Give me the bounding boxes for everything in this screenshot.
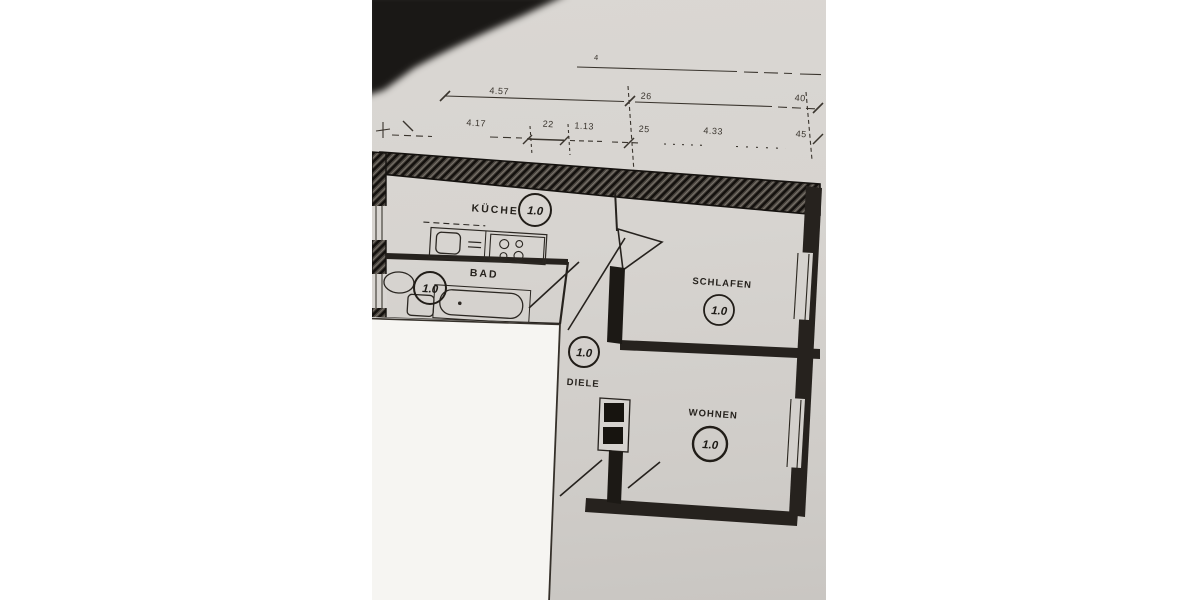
room-bad: BAD 1.0 [414,267,499,304]
dimension-label: 25 [638,124,650,135]
wall-wohnen-left [607,450,623,504]
dimension-labels: 4 4.57 26 40 4.17 22 1.13 25 4.33 45 [466,53,807,140]
page: 4 4.57 26 40 4.17 22 1.13 25 4.33 45 [0,0,1200,600]
wall-diele-schlafen [607,266,625,344]
dimension-label: 45 [795,129,807,140]
room-wohnen: WOHNEN 1.0 [688,407,738,461]
room-label: WOHNEN [688,407,738,421]
floorplan-drawing: 4 4.57 26 40 4.17 22 1.13 25 4.33 45 [372,0,826,600]
wall-bad-right [560,262,568,324]
room-number: 1.0 [702,439,719,452]
dimension-label: 4.57 [489,85,509,96]
bathtub-icon [433,285,531,324]
door-leaf-icon [618,229,662,270]
exterior-wall-top [380,152,820,215]
wall-schlafen-wohnen [620,340,820,359]
room-number: 1.0 [527,205,544,218]
room-label: DIELE [566,377,600,390]
room-schlafen: SCHLAFEN 1.0 [692,276,752,325]
room-label: SCHLAFEN [692,276,752,291]
room-label: BAD [469,267,499,281]
room-label: KÜCHE [471,201,519,217]
dimension-label: 1.13 [574,120,594,131]
equals-mark [468,242,481,248]
room-number: 1.0 [422,283,439,296]
toilet-icon [407,294,434,317]
dimension-label: 4.17 [466,117,486,128]
dimension-label: 4.33 [703,125,723,136]
floorplan-photo: 4 4.57 26 40 4.17 22 1.13 25 4.33 45 [372,0,826,600]
washbasin-icon [383,271,414,294]
room-diele: 1.0 DIELE [566,337,600,390]
bathroom-fixtures [382,271,531,323]
dimension-label: 26 [640,91,652,102]
room-number: 1.0 [711,305,728,318]
dimension-label: 40 [794,93,806,104]
room-number: 1.0 [576,347,593,360]
room-kueche: KÜCHE 1.0 [471,194,551,226]
dimension-label: 22 [542,119,554,130]
blank-sheet-overlay [372,317,559,600]
camera-shadow [372,0,568,96]
sink-icon [436,232,461,254]
shaft-icon [598,398,630,452]
dimension-label: 4 [594,53,599,62]
